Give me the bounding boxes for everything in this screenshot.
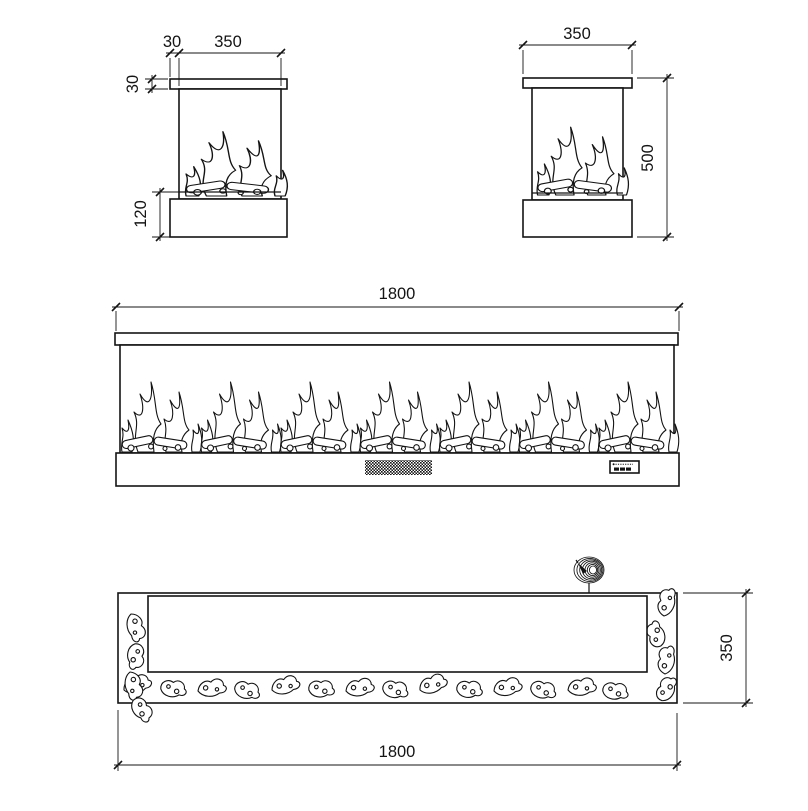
dim-label-height: 500 — [639, 144, 657, 172]
button-icon — [626, 468, 631, 471]
top-cap — [170, 79, 287, 89]
dimension-width: 350 — [519, 25, 636, 74]
dimension-width: 1800 — [114, 710, 681, 771]
dim-label-base-height: 120 — [132, 200, 150, 228]
top-cap — [115, 333, 678, 345]
dim-label-cap-thickness: 30 — [124, 75, 142, 93]
base-plinth — [170, 199, 287, 237]
vent-grille — [365, 460, 432, 475]
side-view: 350 500 — [519, 25, 674, 241]
plan-opening — [148, 596, 647, 672]
front-view: 1800 — [112, 285, 683, 486]
dim-label-depth: 350 — [718, 634, 736, 662]
power-cord-coil-icon — [574, 557, 604, 593]
control-panel — [610, 461, 639, 473]
drawing-sheet: 30 350 30 120 — [0, 0, 808, 811]
button-icon — [620, 468, 625, 471]
dim-label-width: 350 — [563, 25, 591, 43]
dimension-cap-overhang-and-width: 30 350 — [163, 33, 285, 86]
control-panel-frame — [610, 461, 639, 473]
dimension-cap-thickness: 30 — [124, 75, 168, 93]
dim-label-cap-overhang: 30 — [163, 33, 181, 51]
fireplace-technical-drawing: 30 350 30 120 — [0, 0, 808, 811]
dimension-depth: 350 — [683, 589, 753, 707]
dim-label-width: 1800 — [379, 743, 416, 761]
dimension-width: 1800 — [112, 285, 683, 331]
button-icon — [614, 468, 619, 471]
power-led-icon — [613, 463, 615, 465]
dim-label-width: 350 — [214, 33, 242, 51]
dim-label-width: 1800 — [379, 285, 416, 303]
dimension-height: 500 — [637, 74, 674, 241]
top-cap — [523, 78, 632, 88]
base-plinth — [523, 200, 632, 237]
plan-view: 350 1800 — [114, 557, 753, 771]
side-detail-view: 30 350 30 120 — [124, 33, 287, 241]
